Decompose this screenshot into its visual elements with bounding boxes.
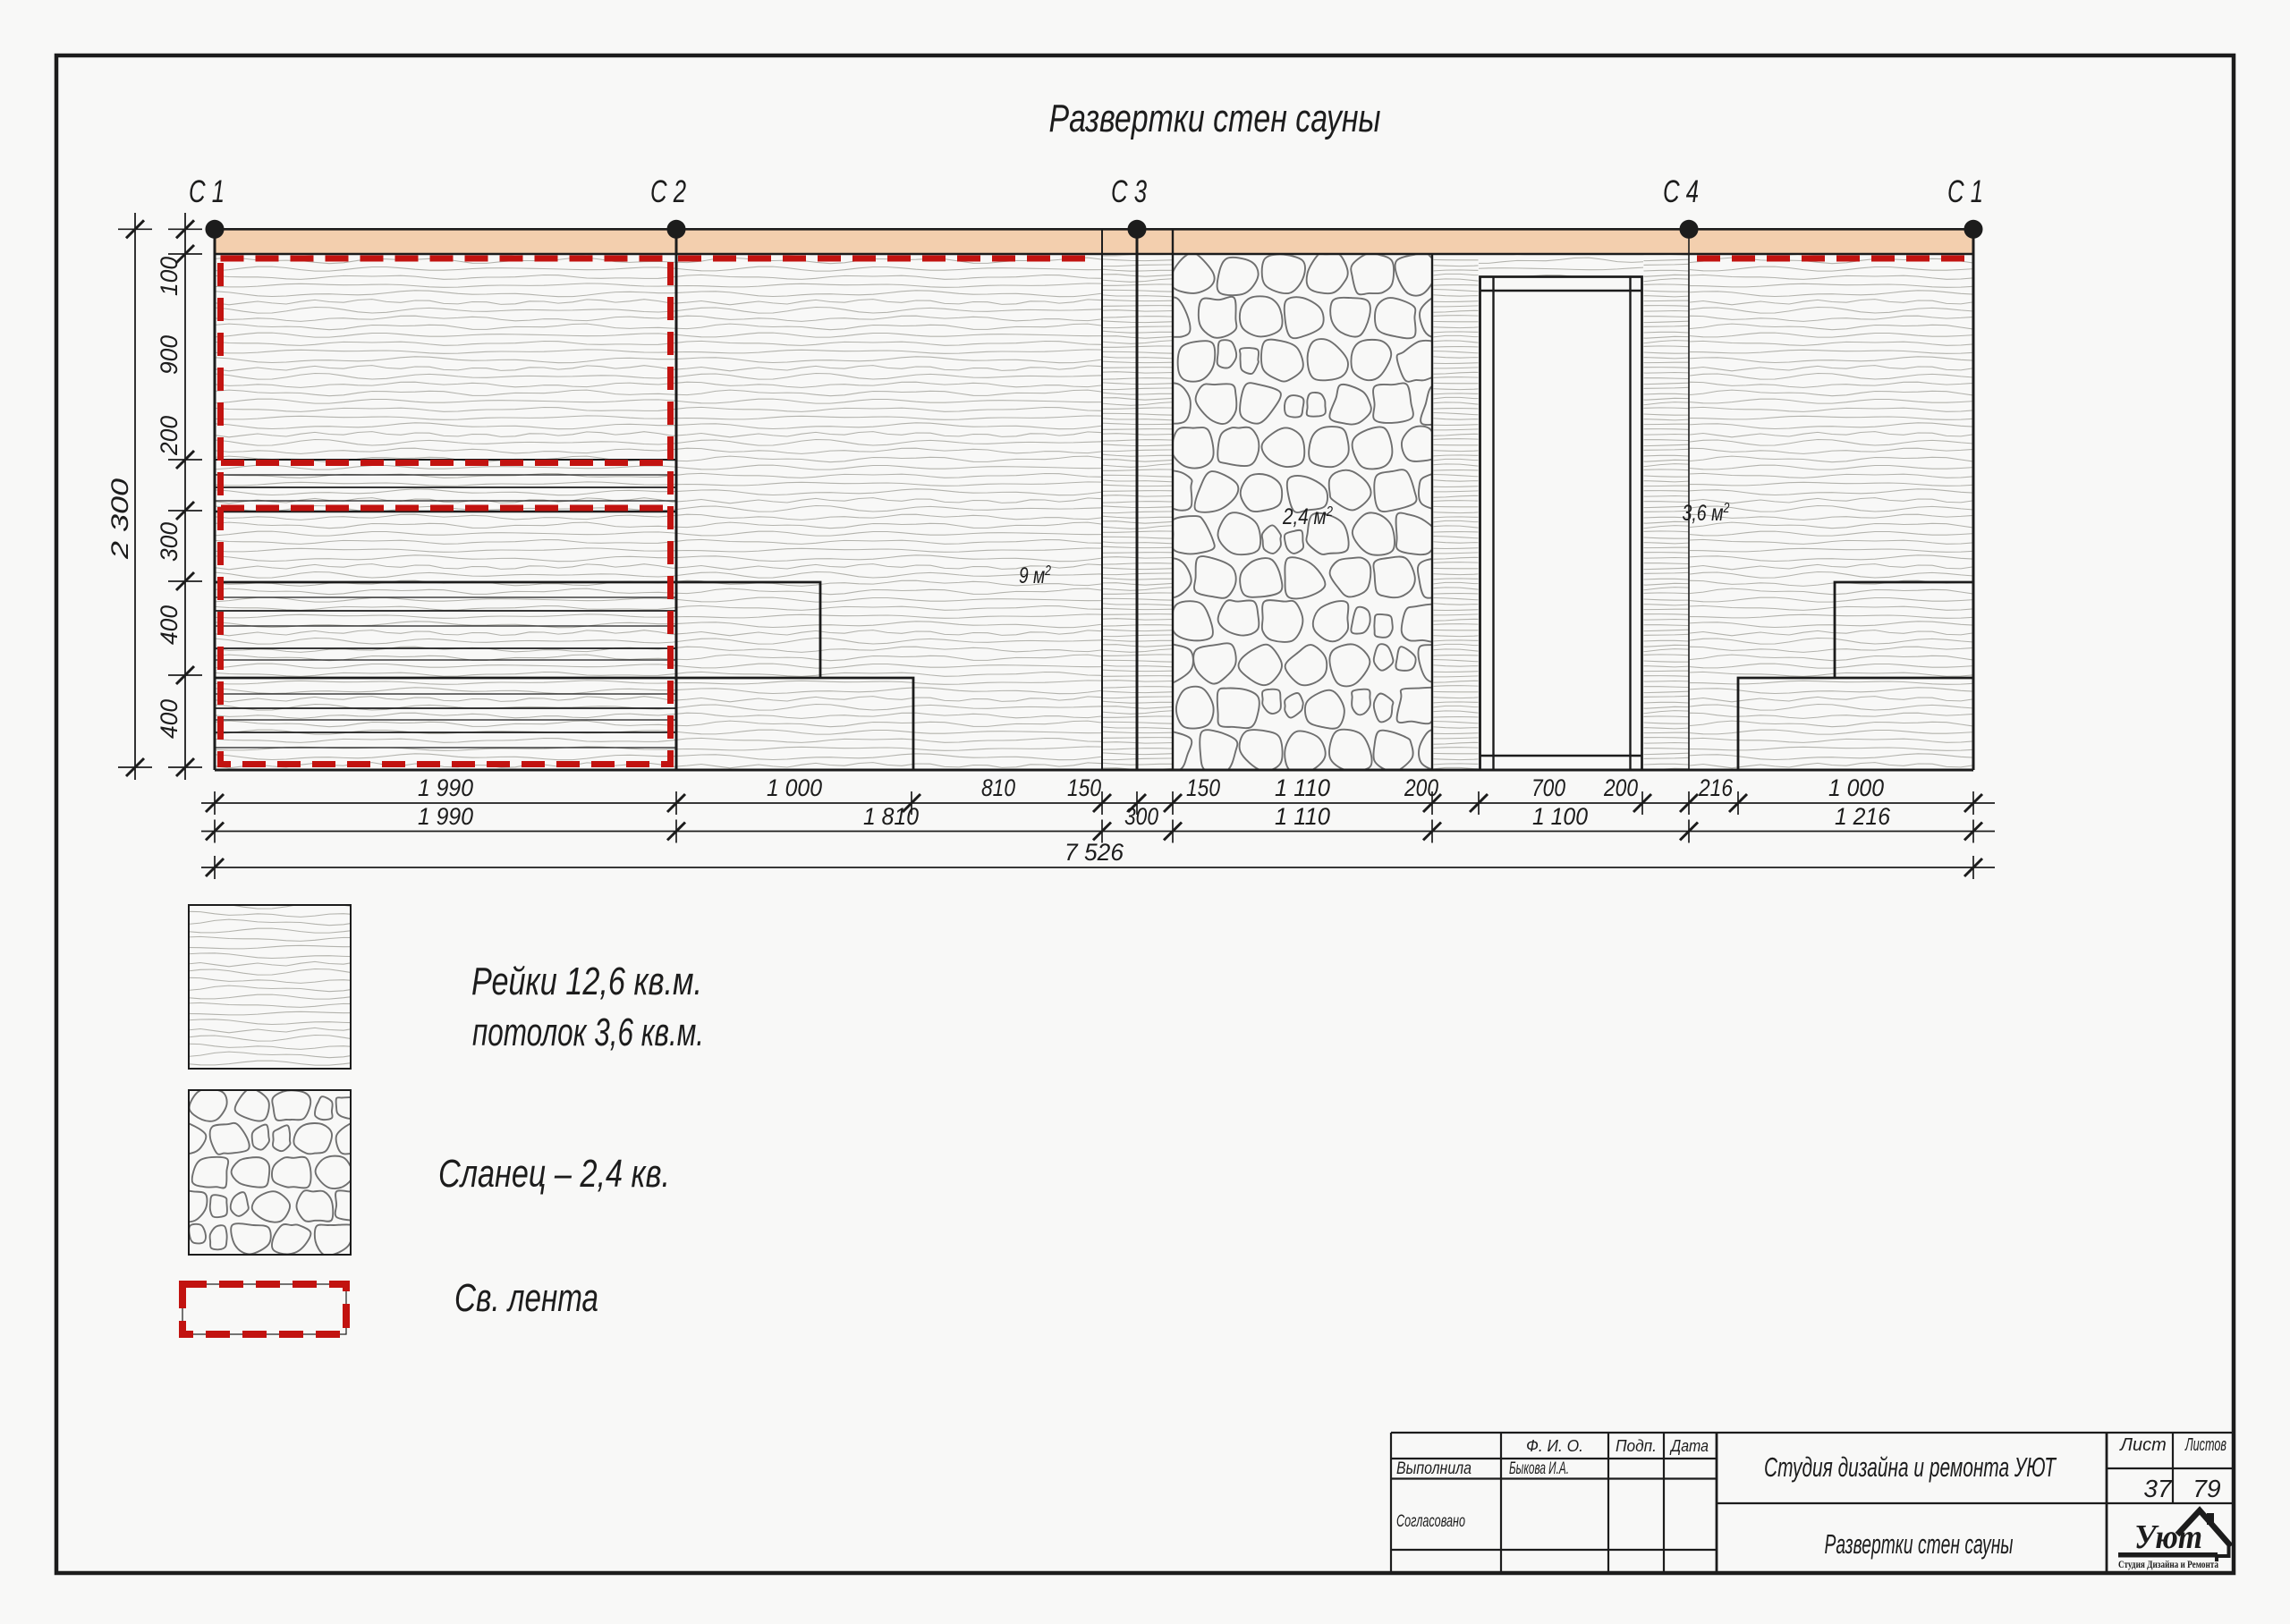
svg-text:Развертки стен сауны: Развертки стен сауны bbox=[1825, 1528, 2014, 1560]
svg-text:200: 200 bbox=[156, 416, 182, 456]
svg-text:Сланец – 2,4 кв.: Сланец – 2,4 кв. bbox=[438, 1152, 670, 1196]
svg-text:1 000: 1 000 bbox=[767, 774, 822, 801]
svg-text:2 300: 2 300 bbox=[106, 478, 133, 560]
svg-text:1 990: 1 990 bbox=[418, 774, 473, 801]
svg-text:37: 37 bbox=[2143, 1475, 2173, 1502]
svg-text:400: 400 bbox=[156, 699, 182, 739]
svg-text:Рейки 12,6 кв.м.: Рейки 12,6 кв.м. bbox=[471, 960, 702, 1003]
svg-text:216: 216 bbox=[1698, 774, 1734, 801]
svg-text:1 000: 1 000 bbox=[1828, 774, 1884, 801]
svg-text:1 216: 1 216 bbox=[1835, 803, 1891, 830]
svg-text:200: 200 bbox=[1404, 774, 1438, 801]
svg-text:1 110: 1 110 bbox=[1275, 774, 1330, 801]
svg-text:потолок 3,6 кв.м.: потолок 3,6 кв.м. bbox=[472, 1011, 704, 1054]
svg-text:100: 100 bbox=[156, 257, 182, 296]
svg-text:Подп.: Подп. bbox=[1616, 1437, 1657, 1455]
svg-text:7 526: 7 526 bbox=[1064, 839, 1124, 866]
svg-text:1 810: 1 810 bbox=[863, 803, 919, 830]
svg-text:300: 300 bbox=[156, 522, 182, 562]
svg-text:Листов: Листов bbox=[2184, 1435, 2226, 1455]
svg-text:Св. лента: Св. лента bbox=[454, 1276, 598, 1320]
svg-text:Согласовано: Согласовано bbox=[1396, 1512, 1465, 1531]
svg-text:С 2: С 2 bbox=[650, 174, 686, 209]
svg-text:200: 200 bbox=[1603, 774, 1638, 801]
svg-text:2,4 м2: 2,4 м2 bbox=[1282, 504, 1333, 529]
svg-text:Студия дизайна и ремонта УЮТ: Студия дизайна и ремонта УЮТ bbox=[1764, 1451, 2057, 1483]
svg-text:С 1: С 1 bbox=[1947, 174, 1983, 209]
svg-text:Ф. И. О.: Ф. И. О. bbox=[1526, 1437, 1583, 1455]
svg-text:150: 150 bbox=[1067, 774, 1101, 801]
svg-text:810: 810 bbox=[981, 774, 1015, 801]
svg-text:900: 900 bbox=[156, 335, 182, 375]
svg-text:Быкова И.А.: Быкова И.А. bbox=[1509, 1459, 1569, 1478]
svg-text:1 990: 1 990 bbox=[418, 803, 473, 830]
svg-text:400: 400 bbox=[156, 605, 182, 645]
svg-text:С 1: С 1 bbox=[189, 174, 225, 209]
svg-text:1 100: 1 100 bbox=[1532, 803, 1588, 830]
svg-text:С 3: С 3 bbox=[1111, 174, 1147, 209]
svg-text:Студия Дизайна и Ремонта: Студия Дизайна и Ремонта bbox=[2118, 1558, 2218, 1570]
svg-text:Лист: Лист bbox=[2118, 1435, 2167, 1455]
svg-text:79: 79 bbox=[2192, 1475, 2220, 1502]
svg-text:Выполнила: Выполнила bbox=[1396, 1459, 1472, 1478]
svg-text:150: 150 bbox=[1186, 774, 1220, 801]
svg-text:700: 700 bbox=[1531, 774, 1565, 801]
svg-text:1 110: 1 110 bbox=[1275, 803, 1330, 830]
svg-text:С 4: С 4 bbox=[1663, 174, 1699, 209]
svg-text:Дата: Дата bbox=[1669, 1437, 1709, 1455]
svg-text:Развертки стен сауны: Развертки стен сауны bbox=[1049, 97, 1381, 140]
svg-text:300: 300 bbox=[1124, 803, 1158, 830]
svg-text:Уют: Уют bbox=[2134, 1518, 2202, 1556]
